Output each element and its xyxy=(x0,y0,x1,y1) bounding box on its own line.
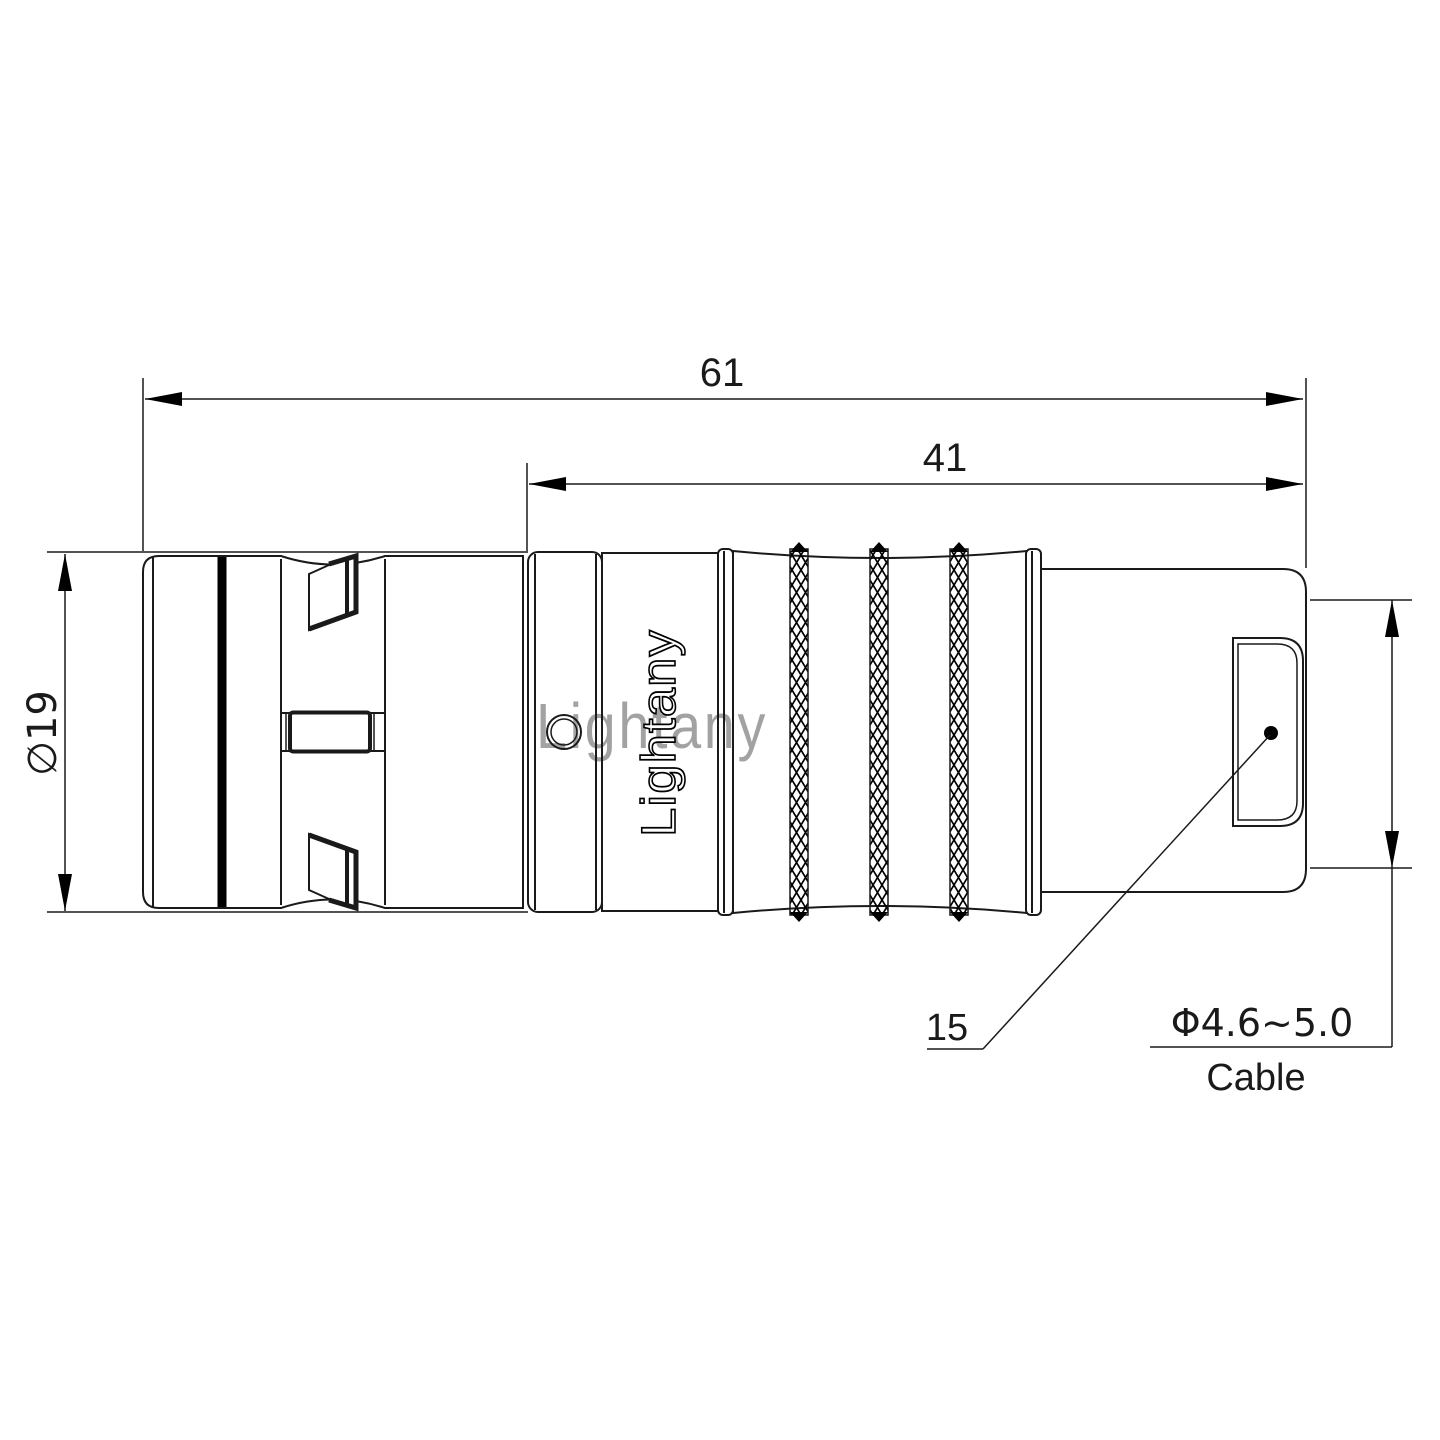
dim-cable-arrow-top xyxy=(1385,600,1399,637)
drawing-page: Lightany Lightany 61 41 ∅19 15 xyxy=(0,0,1440,1440)
knurl-band-3 xyxy=(950,549,968,915)
key-block xyxy=(290,713,370,752)
dim-41-arrow-left xyxy=(529,477,566,491)
dim-diameter-value: ∅19 xyxy=(20,690,66,776)
knurl-band-1-tip-top xyxy=(790,542,808,552)
cable-diameter-label: Φ4.6~5.0 xyxy=(1171,1001,1354,1045)
knurl-band-3-tip-top xyxy=(950,542,968,552)
dim-41-arrow-right xyxy=(1266,477,1303,491)
cable-word-label: Cable xyxy=(1206,1057,1305,1099)
knurl-band-2-tip-top xyxy=(870,542,888,552)
dim-61-arrow-right xyxy=(1266,392,1303,406)
dim-41-value: 41 xyxy=(923,436,968,480)
front-barrel-black-band xyxy=(218,557,227,907)
knurl-band-1 xyxy=(790,549,808,915)
rib-ring-right xyxy=(1026,549,1041,915)
knurl-band-2 xyxy=(870,549,888,915)
dim-cable-arrow-bottom xyxy=(1385,831,1399,868)
leader-anchor-dot xyxy=(1264,726,1278,740)
knurl-band-2-tip-bottom xyxy=(870,912,888,922)
ref-15-label: 15 xyxy=(926,1007,968,1049)
connector-drawing-canvas: Lightany Lightany 61 41 ∅19 15 xyxy=(0,0,1440,1440)
knurl-band-1-tip-bottom xyxy=(790,912,808,922)
dim-61-value: 61 xyxy=(700,351,745,395)
dim-61-arrow-left xyxy=(145,392,182,406)
knurl-band-3-tip-bottom xyxy=(950,912,968,922)
dim-19-arrow-top xyxy=(58,554,72,591)
dim-19-arrow-bottom xyxy=(58,874,72,911)
brand-logo-text: Lightany xyxy=(633,629,686,837)
